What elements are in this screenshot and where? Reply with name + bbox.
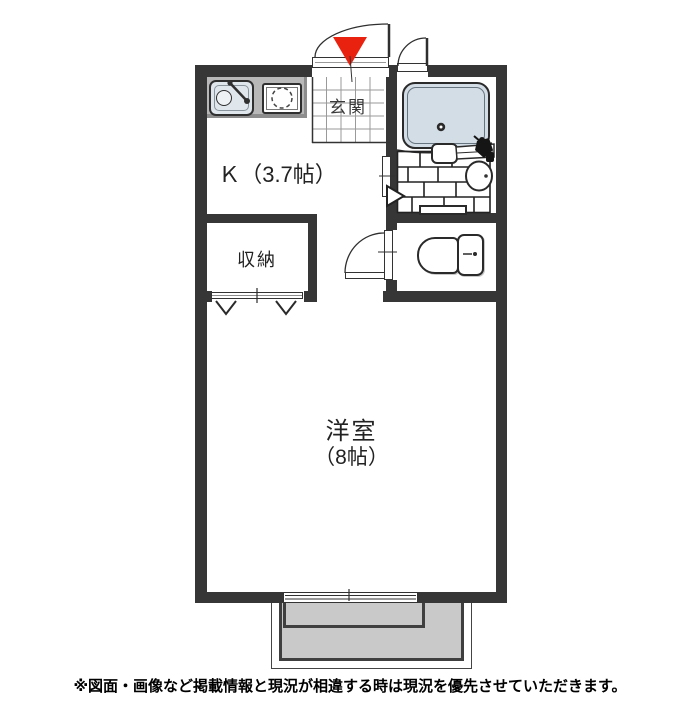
entrance-door-swing-icon bbox=[315, 24, 389, 57]
wall-toilet-door-bottom-stub bbox=[386, 280, 397, 291]
balcony-inner-step bbox=[283, 603, 425, 628]
wall-left bbox=[195, 65, 207, 603]
entrance-threshold-line bbox=[315, 62, 386, 63]
closet-folding-door-icon bbox=[211, 292, 303, 299]
western-room-size-label: （8帖） bbox=[279, 441, 424, 471]
entrance-label: 玄関 bbox=[316, 93, 380, 118]
floorplan-canvas: Ｋ（3.7帖） 玄関 収納 洋室 （8帖） ※図面・画像など掲載情報と現況が相違… bbox=[0, 0, 700, 718]
wall-bath-left bbox=[386, 77, 397, 223]
second-door-swing-icon bbox=[398, 38, 427, 66]
disclaimer-text: ※図面・画像など掲載情報と現況が相違する時は現況を優先させていただきます。 bbox=[0, 675, 700, 696]
wall-mid-stub bbox=[304, 291, 317, 302]
wall-mid-left-stub bbox=[195, 291, 212, 302]
sliding-window-icon bbox=[283, 592, 418, 603]
toilet-tank bbox=[457, 234, 484, 276]
stove-inner-rim bbox=[266, 87, 298, 110]
sink-drain bbox=[216, 90, 232, 106]
toilet-icon bbox=[417, 237, 459, 274]
wall-bath-bottom bbox=[386, 213, 496, 223]
wall-closet-top bbox=[195, 214, 317, 223]
kitchen-label: Ｋ（3.7帖） bbox=[210, 157, 345, 189]
toilet-door-leaf bbox=[345, 272, 385, 279]
second-door-threshold bbox=[397, 63, 428, 72]
stove-icon bbox=[262, 83, 302, 114]
bathtub-inner-rim bbox=[407, 87, 485, 144]
sink-icon bbox=[209, 80, 254, 116]
wall-closet-right bbox=[308, 223, 317, 301]
entrance-door-threshold bbox=[312, 57, 389, 68]
bathtub-icon bbox=[402, 82, 490, 149]
closet-label: 収納 bbox=[215, 246, 299, 272]
wall-toilet-door-top-stub bbox=[386, 223, 397, 230]
bathroom-doorway bbox=[382, 156, 391, 197]
wall-right bbox=[496, 65, 507, 603]
toilet-doorway bbox=[384, 230, 393, 280]
wall-mid-right bbox=[383, 291, 507, 302]
